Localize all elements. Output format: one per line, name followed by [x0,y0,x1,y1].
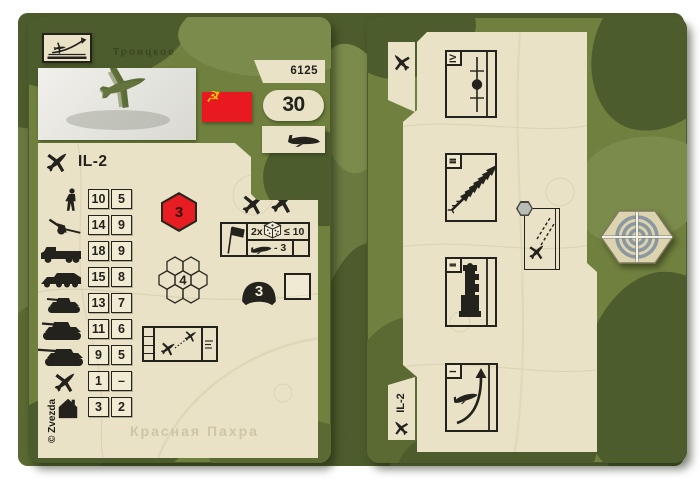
defense-value: 5 [111,189,132,209]
table-row: 11 6 [38,319,138,341]
divider [201,328,203,360]
points-pill: 30 [263,90,324,121]
altitude-level: I [448,370,459,373]
capture-flag-cell [222,224,248,255]
table-row: 13 7 [38,293,138,315]
altitude-box-1: I [445,363,498,432]
star-icon: ★ [215,90,220,97]
attack-value: 3 [88,397,109,417]
points-value: 30 [263,93,324,117]
strafing-plane-icon [525,209,558,268]
top-tab [388,42,415,112]
dice-threshold: ≤ 10 [284,226,304,238]
attack-value: 10 [88,189,109,209]
movement-value: 4 [179,273,187,288]
strafing-box [524,208,560,270]
map-label-top: Троицкое [113,47,176,58]
air-combat-box: 2x ≤ 10 - 3 [220,222,310,257]
altitude-level: III [448,159,459,164]
table-row: 18 9 [38,241,138,263]
dogfight-box [142,326,218,362]
altitude-box-2: II [445,257,497,327]
altitude-level-cell: IV [445,50,462,66]
artillery-gun-icon [44,216,84,236]
tracer-dots [174,336,190,350]
unit-stat-card[interactable]: Троицкое ☭ [28,17,331,463]
map-label-bottom: Красная Пахра [130,423,259,439]
defense-value: 5 [111,345,132,365]
table-row: 9 5 [38,345,138,367]
attack-value: 18 [88,241,109,261]
tab-unit-name: IL-2 [395,393,407,413]
copyright-text: © Zvezda [47,373,59,443]
defense-value: 9 [111,241,132,261]
divider [555,209,556,269]
defense-value: 6 [111,319,132,339]
defense-value: 7 [111,293,132,313]
defense-value: 2 [111,397,132,417]
result-dashes [204,339,216,351]
product-code: 6125 [290,65,318,77]
attack-value: 9 [88,345,109,365]
defense-value: 9 [111,215,132,235]
attack-value: 14 [88,215,109,235]
product-code-plate: 6125 [251,60,325,83]
altitude-level-cell: II [445,257,462,273]
tab-plane-icon [392,419,410,437]
map-texture [400,32,597,452]
unit-photo [38,68,196,140]
attack-value: 11 [88,319,109,339]
altitude-level-cell: III [445,153,462,169]
maneuver-panel: IV III [400,32,597,452]
target-token[interactable] [600,206,674,268]
tab-plane-icon [391,52,412,73]
altitude-level: IV [448,54,459,63]
unit-title-plane-icon [40,149,74,175]
unit-name: IL-2 [78,153,108,171]
infantry-icon [64,188,80,212]
modifier-plane-icon [249,241,273,256]
attack-hex-value: 3 [175,204,183,221]
unit-type-box [262,126,325,153]
attack-value: 13 [88,293,109,313]
dice-icon [263,221,282,240]
attack-value: 1 [88,371,109,391]
altitude-box-4: IV [445,50,497,118]
il2-model-image [38,68,196,140]
altitude-level-cell: I [445,363,462,379]
halftrack-icon [38,270,84,288]
flag-icon [223,225,247,255]
attacker-plane-icon [238,191,268,217]
camo-blob [582,17,687,140]
light-tank-icon [44,294,84,314]
takeoff-ability-box [42,33,92,63]
takeoff-chart-icon [44,35,90,61]
building-icon [56,396,80,420]
altitude-level: II [448,263,459,266]
medium-tank-icon [40,319,84,341]
truck-icon [38,242,84,263]
table-row: 10 5 [38,189,138,211]
defense-value: – [111,371,132,391]
helmet-value: 3 [240,283,278,300]
combat-modifier: - 3 [274,242,286,254]
heavy-tank-icon [34,345,86,367]
dogfight-step-column [144,328,155,360]
table-row: 15 8 [38,267,138,289]
movement-hex-flower: 4 [153,249,213,307]
dice-multiplier: 2x [251,226,263,238]
table-row: 14 9 [38,215,138,237]
bottom-tab: IL-2 [388,377,415,440]
altitude-box-3: III [445,153,497,222]
attack-value: 15 [88,267,109,287]
divider [292,239,294,255]
screenshot-root: Троицкое ☭ [0,0,700,480]
soviet-flag: ☭ ★ [202,92,252,122]
aircraft-type-icon [287,131,321,147]
marker-square [284,273,311,300]
defense-value: 8 [111,267,132,287]
